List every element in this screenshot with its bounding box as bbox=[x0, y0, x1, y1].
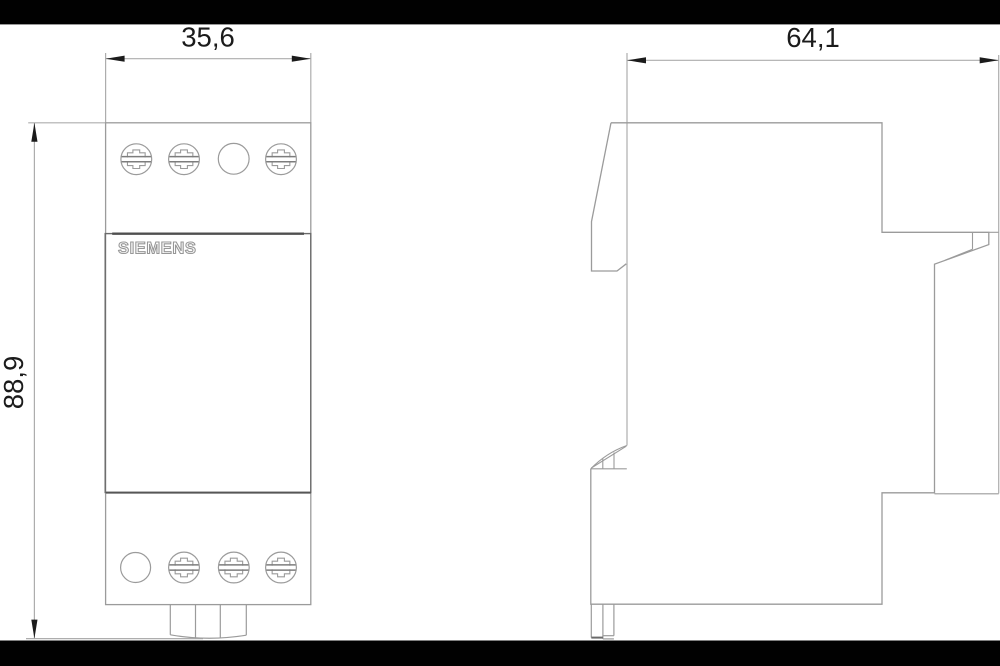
svg-text:88,9: 88,9 bbox=[0, 356, 29, 410]
svg-text:35,6: 35,6 bbox=[181, 21, 235, 52]
svg-text:SIEMENS: SIEMENS bbox=[118, 240, 196, 258]
svg-text:64,1: 64,1 bbox=[786, 22, 840, 53]
